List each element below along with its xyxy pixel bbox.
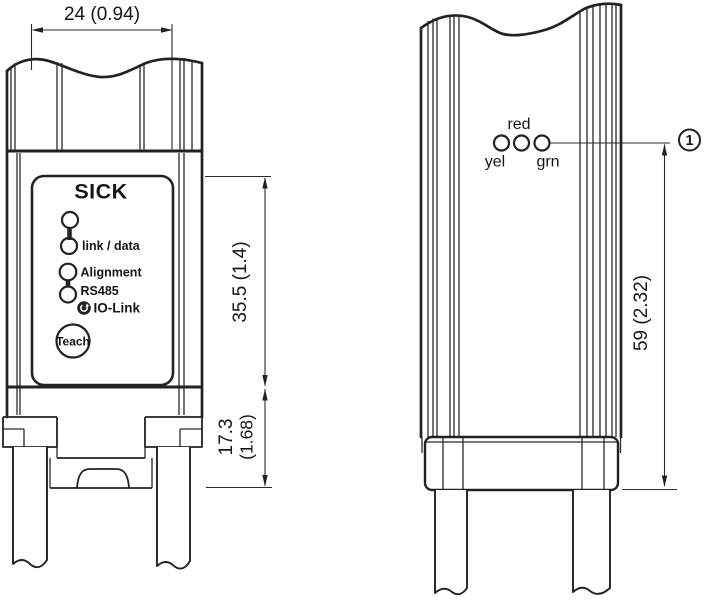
left-lower-section: [3, 417, 202, 569]
right-housing-outline: [421, 3, 621, 437]
right-bottom-cap: [422, 437, 621, 594]
dim-height-35-5: 35.5 (1.4): [205, 177, 271, 387]
alignment-label: Alignment: [81, 266, 143, 280]
led-rs485-icon: [60, 287, 76, 303]
teach-button-label: Teach: [56, 335, 90, 349]
led-yellow-icon: [494, 136, 509, 151]
led-link-icon: [62, 212, 78, 228]
left-cable-gland: [3, 417, 57, 447]
cable-left: [435, 490, 467, 594]
dim-lower-height-mm: 17.3: [216, 419, 237, 456]
led-green-icon: [535, 136, 550, 151]
led-red-label: red: [507, 116, 530, 133]
cable-right: [157, 447, 190, 569]
drawing-canvas: SICK link / data Alignment RS485 IO-Link…: [0, 0, 707, 600]
callout-number: 1: [685, 133, 693, 149]
cap-outline: [425, 437, 618, 490]
dim-height-59: 59 (2.32): [622, 144, 677, 490]
led-alignment-icon: [60, 264, 77, 281]
cable-right: [573, 490, 610, 594]
io-link-logo-icon: [77, 301, 91, 315]
dimensional-drawing: SICK link / data Alignment RS485 IO-Link…: [0, 0, 707, 600]
led-indicators: red yel grn: [485, 116, 560, 171]
callout-1: 1: [550, 130, 701, 151]
dim-lower-height-in: (1.68): [237, 414, 257, 460]
led-grn-label: grn: [536, 154, 559, 171]
left-side-view: SICK link / data Alignment RS485 IO-Link…: [3, 4, 272, 569]
break-wave-top: [421, 4, 621, 36]
dim-width-value: 24 (0.94): [64, 4, 140, 25]
mounting-tab: [77, 469, 129, 488]
right-cable-gland: [145, 417, 202, 447]
front-panel-frame: [32, 176, 173, 385]
front-panel: SICK link / data Alignment RS485 IO-Link…: [32, 176, 173, 385]
led-red-icon: [514, 136, 529, 151]
dim-front-height-value: 35.5 (1.4): [230, 241, 251, 322]
dim-height-17-3: 17.3 (1.68): [206, 389, 272, 488]
break-wave-top: [7, 59, 202, 77]
sick-logo: SICK: [74, 180, 127, 204]
link-data-label: link / data: [82, 239, 141, 253]
led-yel-label: yel: [485, 154, 505, 171]
dim-height-value: 59 (2.32): [631, 275, 652, 351]
rs485-label: RS485: [81, 284, 119, 298]
right-front-view: red yel grn 1 59 (2.32): [421, 3, 700, 594]
io-link-label: IO-Link: [94, 301, 141, 316]
led-data-icon: [61, 238, 77, 254]
cable-left: [13, 447, 47, 567]
